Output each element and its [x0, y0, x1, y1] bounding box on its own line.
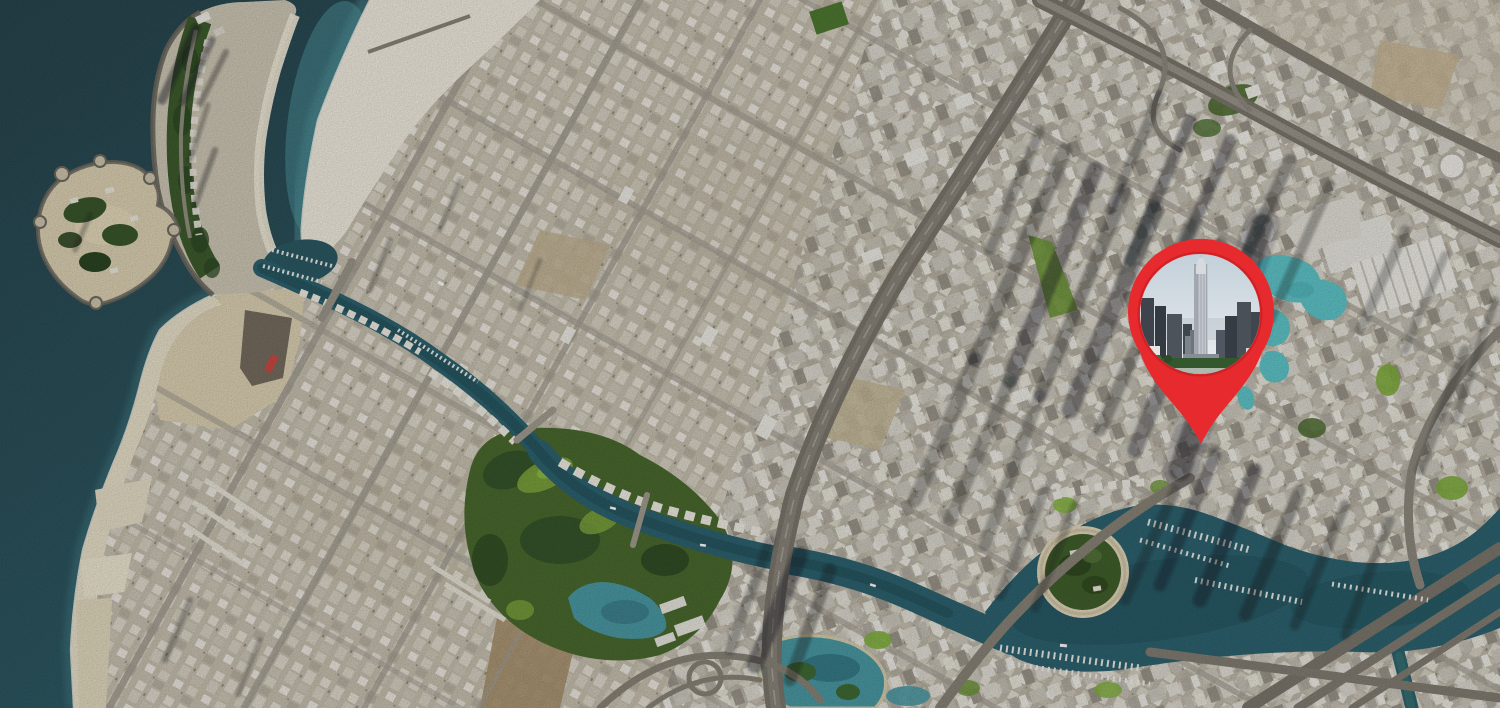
satellite-grain	[0, 0, 1500, 708]
map-viewport[interactable]	[0, 0, 1500, 708]
pin-ground-shadow	[1189, 443, 1221, 453]
satellite-map[interactable]	[0, 0, 1500, 708]
